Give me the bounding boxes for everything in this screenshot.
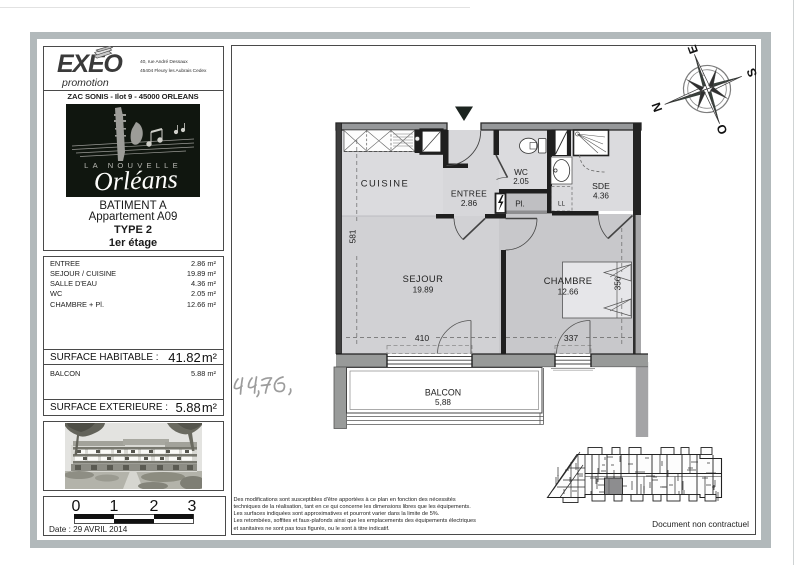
svg-text:CHAMBRE: CHAMBRE bbox=[544, 276, 593, 286]
svg-text:12.66: 12.66 bbox=[558, 287, 579, 297]
svg-text:LL: LL bbox=[558, 201, 565, 208]
svg-text:N: N bbox=[649, 100, 665, 113]
svg-text:ENTREE: ENTREE bbox=[451, 189, 487, 199]
svg-text:337: 337 bbox=[564, 333, 579, 343]
svg-text:410: 410 bbox=[415, 333, 430, 343]
svg-text:O: O bbox=[714, 122, 731, 136]
svg-text:E: E bbox=[685, 43, 701, 56]
svg-text:5,88: 5,88 bbox=[435, 398, 451, 407]
svg-text:Pl.: Pl. bbox=[515, 200, 525, 209]
svg-text:CUISINE: CUISINE bbox=[361, 178, 410, 189]
svg-text:BALCON: BALCON bbox=[425, 388, 461, 398]
svg-text:SDE: SDE bbox=[592, 181, 610, 191]
svg-text:4.36: 4.36 bbox=[593, 192, 609, 201]
svg-text:19.89: 19.89 bbox=[413, 285, 434, 295]
svg-text:2.86: 2.86 bbox=[461, 198, 478, 208]
svg-text:WC: WC bbox=[514, 167, 528, 177]
svg-text:356: 356 bbox=[613, 276, 623, 290]
svg-text:S: S bbox=[744, 66, 760, 79]
svg-text:SEJOUR: SEJOUR bbox=[403, 274, 444, 284]
svg-text:s: s bbox=[722, 79, 729, 84]
svg-text:581: 581 bbox=[348, 229, 358, 243]
svg-text:Orléans: Orléans bbox=[94, 164, 179, 196]
svg-text:2.05: 2.05 bbox=[513, 177, 529, 186]
